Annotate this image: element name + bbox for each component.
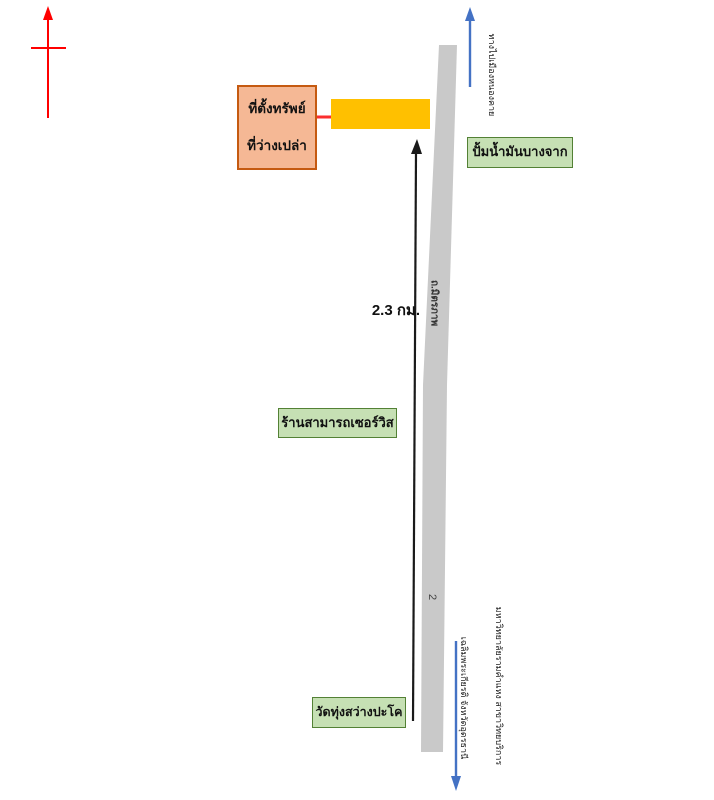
property-callout-box: ที่ตั้งทรัพย์ ที่ว่างเปล่า: [237, 85, 317, 170]
south-destination-label-line2: เฉลิมพระเกียรติ จังหวัดอุดรธานี: [457, 637, 471, 760]
gas-station-label: ปั้มน้ำมันบางจาก: [472, 143, 567, 161]
route-number-label: 2: [426, 594, 438, 600]
distance-measure-arrow: [411, 139, 422, 721]
north-destination-label: ทางไปเมืองหนองคาย: [485, 34, 499, 117]
landmark-service-shop: ร้านสามารถเซอร์วิส: [278, 408, 397, 438]
property-marker: [331, 99, 430, 129]
south-destination-label-line1: มหาวิทยาลัยรามคำแหง สาขาวิทยบริการ: [492, 607, 506, 765]
road-name-label: ถ.มิตรภาพ: [427, 280, 442, 326]
north-direction-arrow: [465, 7, 475, 87]
landmark-gas-station: ปั้มน้ำมันบางจาก: [467, 137, 573, 168]
north-compass-icon: [31, 6, 66, 118]
landmark-temple: วัดทุ่งสว่างปะโค: [312, 697, 406, 728]
location-map: ที่ตั้งทรัพย์ ที่ว่างเปล่า ปั้มน้ำมันบาง…: [0, 0, 714, 800]
service-shop-label: ร้านสามารถเซอร์วิส: [281, 414, 393, 432]
temple-label: วัดทุ่งสว่างปะโค: [316, 704, 403, 722]
property-callout-line2: ที่ว่างเปล่า: [247, 136, 307, 156]
property-callout-line1: ที่ตั้งทรัพย์: [248, 99, 305, 119]
distance-label: 2.3 กม.: [350, 298, 420, 322]
road-shape: [421, 45, 457, 752]
